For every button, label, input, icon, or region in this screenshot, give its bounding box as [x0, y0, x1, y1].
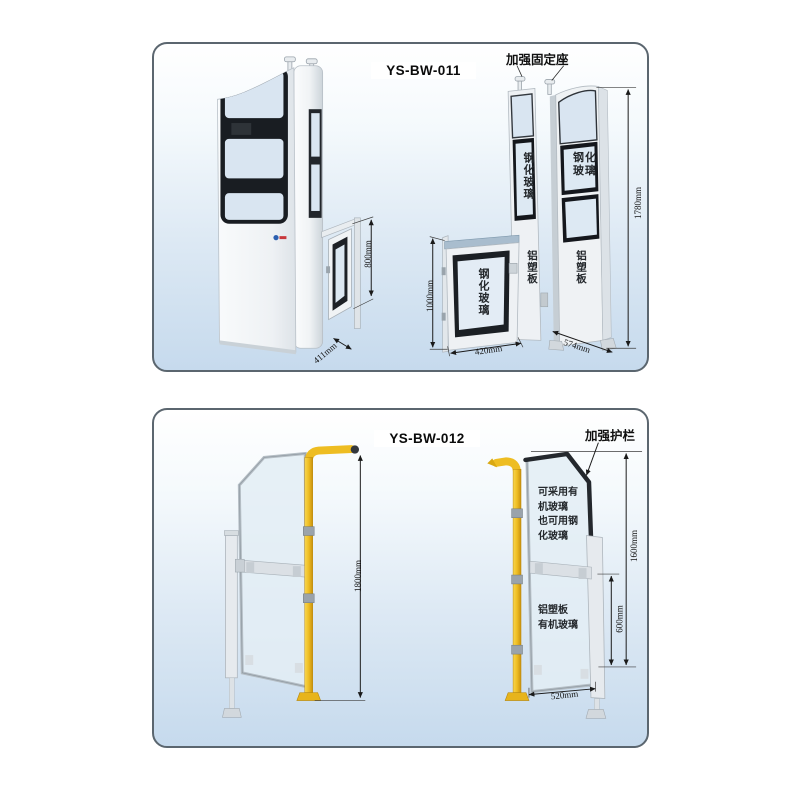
illustration-ysbw011: [154, 44, 647, 370]
lower-material-note: 铝塑板 有机玻璃: [538, 604, 594, 633]
glass-material-note: 可采用有 机玻璃 也可用钢 化玻璃: [538, 486, 594, 544]
label-tempered-glass-right-panel: 钢化 玻璃: [569, 152, 601, 178]
label-alu-board-left-panel: 铝塑板: [525, 250, 540, 298]
label-tempered-glass-door: 钢化玻璃: [475, 268, 491, 326]
model-title: YS-BW-012: [374, 430, 480, 447]
booth-gate: [322, 218, 361, 329]
product-panel-ysbw012: YS-BW-012 加强护栏 可采用有 机玻璃 也可用钢 化玻璃 铝塑板 有机玻…: [152, 408, 649, 748]
dim-label-1800mm: 1800mm: [353, 551, 363, 601]
callout-arrow: [586, 443, 598, 476]
callout-fixing-seat: 加强固定座: [506, 49, 569, 68]
yellow-pole-right: [487, 458, 529, 700]
callout-reinforced-rail: 加强护栏: [585, 425, 635, 444]
dim-label-1600mm: 1600mm: [629, 521, 639, 571]
label-alu-board-right-panel: 铝塑板: [574, 250, 589, 298]
catalog-page: { "colors": { "accent_yellow": "#eebd22"…: [0, 0, 800, 800]
model-title: YS-BW-011: [371, 62, 476, 79]
yellow-pole-left: [297, 445, 359, 700]
dim-label-1780mm: 1780mm: [633, 183, 643, 223]
dim-label-800mm: 800mm: [363, 234, 373, 274]
booth: [217, 57, 322, 354]
label-tempered-glass-left-panel: 钢化玻璃: [520, 152, 536, 222]
dim-label-600mm: 600mm: [615, 597, 625, 642]
gate-left: [222, 453, 306, 717]
booth-window: [220, 68, 287, 224]
product-panel-ysbw011: YS-BW-011 加强固定座 钢化玻璃 钢化 玻璃 铝塑板 铝塑板 钢化玻璃 …: [152, 42, 649, 372]
dim-label-1000mm: 1000mm: [425, 276, 435, 316]
